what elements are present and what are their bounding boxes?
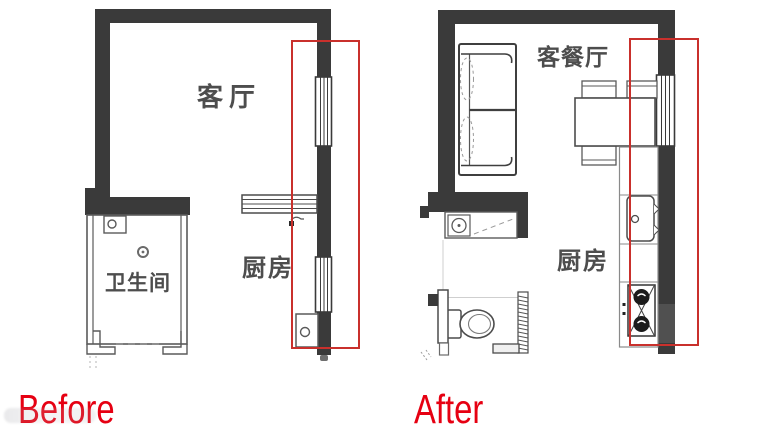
kitchen-sink	[627, 196, 659, 241]
stove	[623, 285, 656, 336]
floorplan-comparison: 客厅 卫生间 厨房 客餐厅 厨房 Before After	[0, 0, 760, 436]
bathroom-door-panel	[421, 290, 449, 360]
before-walls	[85, 9, 331, 361]
chair	[582, 146, 616, 165]
chair	[582, 81, 616, 98]
layout-guide-lines	[443, 240, 518, 298]
room-label-kitchen-after: 厨房	[557, 250, 609, 274]
sofa	[459, 44, 516, 175]
window-icon	[316, 77, 332, 146]
room-label-living-room: 客厅	[197, 84, 261, 110]
kitchen-shelf	[242, 195, 317, 213]
window-icon	[657, 75, 675, 146]
floorplan-drawing	[0, 0, 760, 436]
dining-table	[575, 98, 655, 146]
room-label-kitchen-before: 厨房	[242, 257, 294, 281]
before-plan	[85, 9, 359, 371]
window-icon	[316, 257, 332, 312]
floor-drain-icon	[138, 247, 148, 257]
kitchen-fixture	[296, 314, 318, 347]
room-label-bathroom: 卫生间	[105, 273, 171, 294]
low-wall	[493, 344, 519, 353]
room-label-living-dining-room: 客餐厅	[537, 46, 609, 69]
bathroom-sink	[104, 216, 126, 233]
toilet	[447, 310, 494, 338]
washing-machine-counter	[445, 212, 517, 238]
caption-after: After	[414, 389, 483, 430]
watermark	[4, 408, 96, 423]
chair	[627, 81, 657, 98]
